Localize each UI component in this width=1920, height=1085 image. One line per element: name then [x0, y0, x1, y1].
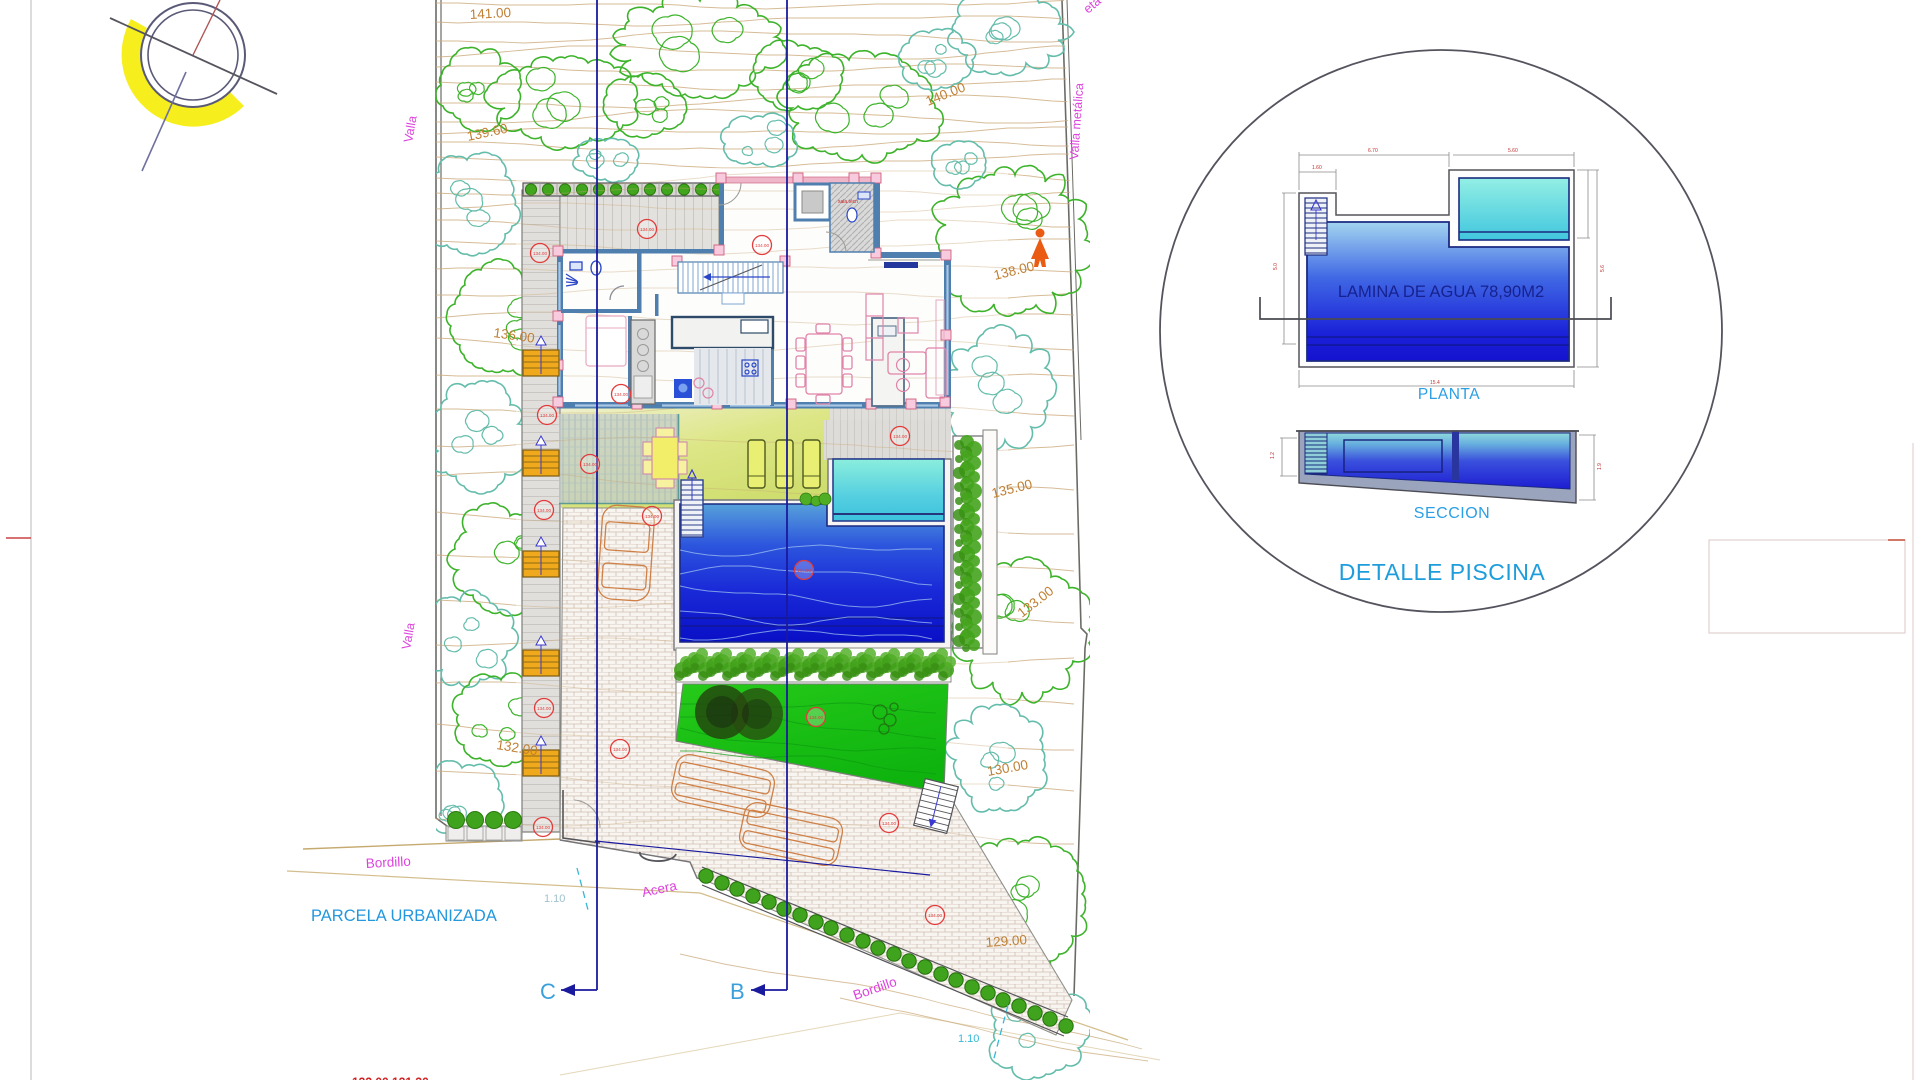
svg-text:134.00: 134.00	[537, 706, 551, 711]
svg-text:134.00: 134.00	[540, 413, 554, 418]
svg-text:B: B	[730, 979, 745, 1004]
svg-text:1.10: 1.10	[544, 893, 565, 905]
svg-text:1.2: 1.2	[1270, 452, 1276, 459]
svg-text:LAMINA DE AGUA 78,90M2: LAMINA DE AGUA 78,90M2	[1338, 283, 1544, 301]
svg-text:134.00: 134.00	[928, 913, 942, 918]
svg-text:C: C	[540, 979, 556, 1004]
svg-text:sala.técn: sala.técn	[838, 199, 858, 205]
svg-text:134.00: 134.00	[537, 508, 551, 513]
svg-text:1.10: 1.10	[958, 1033, 979, 1045]
svg-text:1.60: 1.60	[1312, 165, 1322, 171]
svg-text:1.9: 1.9	[1597, 463, 1603, 470]
svg-text:134.00: 134.00	[536, 825, 550, 830]
svg-text:141.00: 141.00	[469, 5, 511, 22]
svg-text:134.00: 134.00	[755, 243, 769, 248]
svg-text:134.00: 134.00	[797, 568, 811, 573]
svg-text:134.00: 134.00	[613, 747, 627, 752]
svg-text:132.00 131.30: 132.00 131.30	[352, 1075, 429, 1080]
svg-text:5.6: 5.6	[1600, 265, 1606, 272]
svg-text:DETALLE PISCINA: DETALLE PISCINA	[1339, 559, 1546, 585]
svg-text:134.00: 134.00	[614, 392, 628, 397]
svg-text:134.00: 134.00	[809, 715, 823, 720]
svg-text:134.00: 134.00	[583, 462, 597, 467]
svg-text:5.60: 5.60	[1508, 148, 1518, 154]
svg-text:134.00: 134.00	[893, 434, 907, 439]
svg-text:134.00: 134.00	[640, 227, 654, 232]
svg-text:134.00: 134.00	[882, 821, 896, 826]
svg-text:134.00: 134.00	[533, 251, 547, 256]
svg-text:134.00: 134.00	[645, 514, 659, 519]
svg-text:PARCELA URBANIZADA: PARCELA URBANIZADA	[311, 907, 497, 925]
svg-text:SECCION: SECCION	[1414, 505, 1490, 522]
svg-text:6.70: 6.70	[1368, 148, 1378, 154]
svg-text:129.00: 129.00	[985, 932, 1027, 950]
svg-text:Bordillo: Bordillo	[365, 854, 411, 871]
svg-text:5.0: 5.0	[1273, 263, 1279, 270]
svg-text:PLANTA: PLANTA	[1418, 386, 1480, 403]
